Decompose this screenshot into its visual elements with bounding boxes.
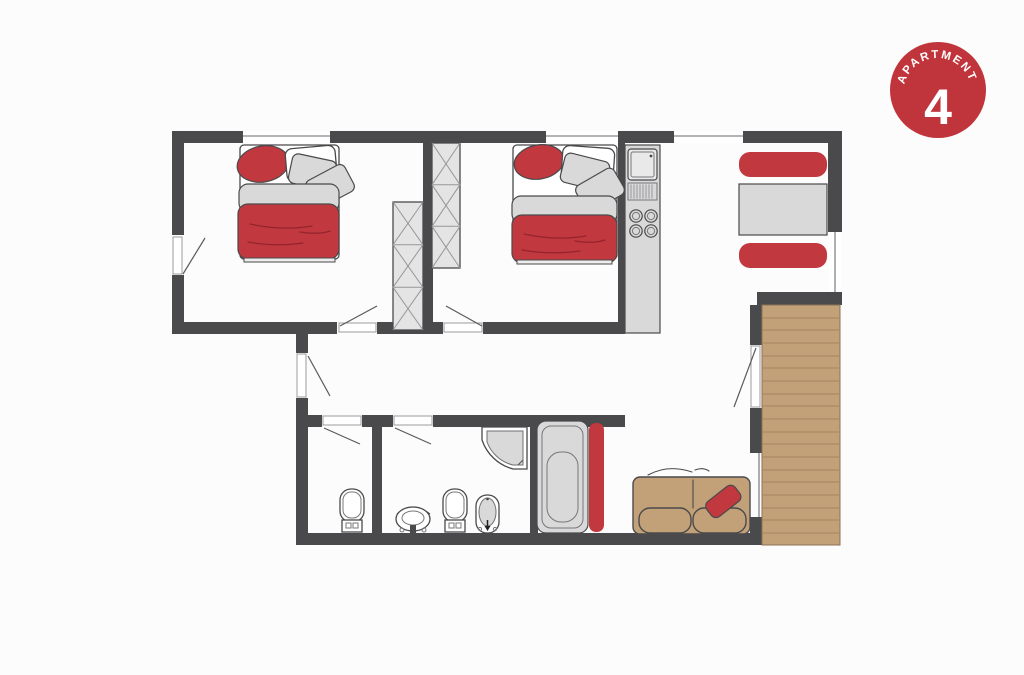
decor-line [695, 469, 709, 471]
kitchen-unit [625, 145, 660, 333]
window-icon [546, 131, 618, 143]
wall-segment [757, 292, 842, 305]
floor-plan-canvas: APARTMENT 4 [0, 0, 1024, 675]
double-bed-icon [234, 142, 356, 262]
apartment-badge: APARTMENT 4 [890, 42, 986, 138]
bench-seat-icon [739, 243, 827, 268]
toilet-icon [443, 489, 467, 532]
wall-segment [750, 517, 762, 545]
dining-table-icon [739, 184, 827, 235]
wall-segment [362, 415, 393, 427]
bidet-icon [476, 495, 499, 533]
dining-area [739, 152, 827, 268]
window-icon [829, 232, 841, 292]
door-swing-icon-bathroom [394, 416, 432, 444]
wall-segment [172, 131, 184, 235]
staircase-icon [762, 305, 840, 545]
door-swing-icon-terrace [173, 237, 205, 274]
sofa-icon [633, 469, 750, 534]
wall-segment [750, 408, 762, 453]
decor-line [648, 469, 692, 475]
bench-seat-icon [739, 152, 827, 177]
toilet-icon [340, 489, 364, 532]
bed-base [517, 260, 612, 264]
wall-segment [483, 322, 625, 334]
wall-segment [372, 427, 382, 533]
door-swing-icon-wc [323, 416, 361, 444]
duvet [238, 204, 339, 259]
wall-segment [172, 322, 337, 334]
wall-segment [618, 143, 625, 334]
wall-segment [743, 131, 842, 143]
wall-segment [296, 427, 308, 537]
bed-base [244, 258, 335, 262]
double-bed-icon [511, 141, 626, 264]
towel [589, 423, 604, 532]
wall-segment [296, 415, 322, 427]
doors [173, 237, 760, 444]
wall-segment [296, 533, 762, 545]
door-swing-icon-entrance [297, 354, 330, 397]
wardrobe-crosshatch-icon [432, 143, 460, 268]
duvet [512, 215, 617, 263]
badge-number: 4 [924, 79, 952, 135]
wall-segment [330, 131, 546, 143]
window-icon [243, 131, 330, 143]
kitchen-sink-icon [628, 149, 657, 180]
wall-segment [750, 305, 762, 345]
bathtub-icon [537, 421, 604, 533]
wall-segment [828, 131, 842, 232]
window-icon [674, 131, 743, 143]
wall-segment [618, 131, 674, 143]
door-swing-icon-bedroom-1 [339, 306, 377, 332]
wall-segment [296, 334, 308, 353]
floor-plan: APARTMENT 4 [0, 0, 1024, 675]
wardrobe-crosshatch-icon [393, 202, 423, 330]
seat-cushion [639, 508, 691, 533]
corner-shower-icon [482, 427, 527, 469]
wash-basin-icon [396, 507, 430, 534]
door-swing-icon-stairs [734, 346, 760, 407]
door-swing-icon-bedroom-2 [444, 306, 482, 332]
